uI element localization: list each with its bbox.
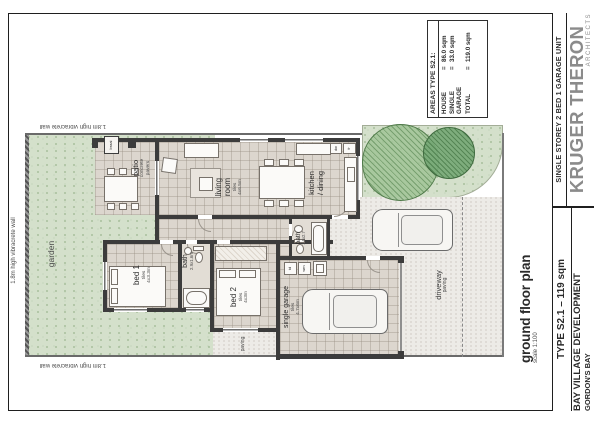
equals: = [441,62,448,70]
pillow [219,270,236,278]
kitchen-name: / dining [317,171,325,195]
area-label: TOTAL [465,70,472,114]
boundary-dashed-line [462,197,464,357]
wall [278,256,402,260]
window [186,308,204,312]
kitchen-counter [296,143,331,155]
window [285,138,323,142]
bed2-size: 4x3m [244,291,249,303]
chair [279,159,289,166]
bath1-label: bath 2.9x1.6m [181,246,196,276]
equals: = [449,62,463,70]
area-label: HOUSE [441,70,448,114]
project-name: BAY VILLAGE DEVELOPMENT GORDON'S BAY [572,207,593,411]
areas-table-header: AREAS TYPE S2.1: [428,21,439,117]
porch-paving [330,219,360,256]
chair [119,168,127,175]
drawing-scale: scale 1:100 [533,332,540,363]
chair [264,200,274,207]
chair [294,159,304,166]
bed2-name: bed 2 [230,287,239,307]
kitchen-counter [344,157,357,212]
patio-label: patio concrete pavers [133,150,150,186]
driveway-label: driveway paving [432,257,451,313]
bed1-label: bed 1 tiles 4x3.3m [131,256,154,294]
sofa [184,143,219,158]
area-value: 33.0 sqm [449,36,463,62]
drawing-title: ground floor plan scale 1:100 [511,247,547,363]
bathtub-inner [313,225,324,252]
hall-floor [159,219,291,240]
car-cabin [401,215,443,245]
bath2-label: bath 1.6x2.7 [294,223,308,253]
patio-finish: pavers [146,161,151,175]
chair [119,203,127,210]
wall-label-top: 1.8m high vibracrete wall [28,120,106,129]
window [114,308,147,312]
living-label: living room tiles 4x6.5m [215,166,243,208]
firm-logo: KRUGER THERON ARCHITECTS [566,13,593,206]
paving-label: paving [238,333,249,355]
sliding-door [155,161,159,195]
pillow [239,270,256,278]
garden-label: garden [45,232,59,276]
window [240,138,268,142]
dining-table [259,166,305,199]
washing-machine-label: wm [298,262,311,275]
pillow [111,269,118,285]
car-driveway [372,209,453,251]
garage-size: 4.7x6m [296,299,301,315]
car-windshield-line [398,213,399,247]
fridge-label: fr [343,143,356,154]
wall [327,219,330,256]
wall [210,244,214,310]
chair [264,159,274,166]
window [103,262,107,290]
areas-table-row: HOUSE = 86.0 sqm [439,21,448,117]
window [223,328,258,332]
tree-canopy-small [423,127,475,179]
location-name: GORDON'S BAY [584,353,592,411]
car-garage [302,289,388,334]
area-value: 119.0 sqm [465,32,472,62]
project-type: SINGLE STOREY 2 BED 1 GARAGE UNIT [553,13,566,206]
area-value: 86.0 sqm [441,36,448,62]
chair [294,200,304,207]
garage-door [400,263,402,351]
chair [131,203,139,210]
firm-name: KRUGER THERON [567,26,588,193]
firm-subtitle: ARCHITECTS [586,13,593,66]
driveway-finish: paving [443,278,449,293]
bed1-size: 4x3.3m [147,267,152,283]
armchair [161,157,178,174]
boundary-wall-left [25,133,29,357]
garage-label: single garage tiles 4.7x6m [282,283,302,331]
wall [128,138,136,148]
pillow [111,288,118,304]
boundary-wall-top [25,133,362,135]
bed1-name: bed 1 [133,265,142,285]
living-name: room [224,178,233,196]
chair [107,203,115,210]
areas-table: AREAS TYPE S2.1: HOUSE = 86.0 sqm SINGLE… [427,20,488,118]
tumble-dryer-label: td [284,262,297,275]
dishwasher-label: dw [330,143,342,154]
chair [279,200,289,207]
equals: = [465,62,472,70]
kitchen-label: kitchen / dining [306,164,327,202]
boundary-line-bottom [25,355,504,357]
wall [398,351,404,357]
unit-type: TYPE S2.1 – 119 sqm [553,207,571,411]
areas-table-row: TOTAL = 119.0 sqm [463,21,472,117]
bed2-label: bed 2 tiles 4x3m [228,278,251,316]
bath2-size: 1.6x2.7 [302,231,307,245]
areas-table-row: SINGLE GARAGE = 33.0 sqm [448,21,464,117]
area-label: SINGLE GARAGE [449,70,463,114]
car-windshield-line [329,293,330,330]
garage-name: single garage [283,286,291,328]
drawing-title-text: ground floor plan [518,255,533,363]
bath1-size: 2.9x1.6m [190,252,195,270]
living-size: 4x6.5m [238,179,243,195]
wall-label-left: 1.8m high vibracrete wall [9,198,20,303]
bathtub-inner [186,291,207,305]
coffee-table [199,177,213,191]
braai-label: braai [104,137,119,153]
wall-label-bottom: 1.8m high vibracrete wall [28,359,106,368]
wall [276,354,404,359]
chair [107,168,115,175]
sink [347,167,355,182]
wall [92,138,98,148]
car-cabin [333,295,377,328]
laundry-sink-inner [316,264,324,273]
wall [398,256,404,263]
boundary-line-right [502,133,504,357]
toilet [195,252,203,263]
wardrobe [215,246,267,261]
